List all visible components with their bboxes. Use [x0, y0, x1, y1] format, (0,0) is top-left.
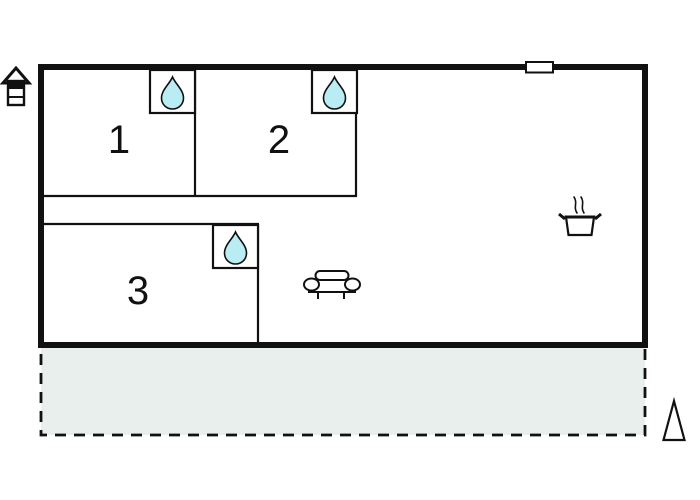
shower-box-1: [150, 70, 195, 113]
room-label-2: 2: [268, 118, 290, 162]
sofa-armrest-left: [304, 279, 319, 291]
sofa-armrest-right: [345, 279, 360, 291]
room-label-1: 1: [108, 118, 130, 162]
shower-box-3: [213, 225, 258, 268]
window-marker: [526, 62, 553, 73]
floor-plan-canvas: 1 2 3: [0, 0, 700, 500]
terrace-area: [41, 345, 645, 435]
pot-body: [566, 217, 594, 235]
north-arrow-icon: [664, 401, 685, 440]
shower-box-2: [312, 70, 357, 113]
sofa-backrest: [316, 271, 349, 280]
house-icon: [3, 68, 29, 105]
room-label-3: 3: [127, 269, 149, 313]
house-icon-band: [8, 81, 24, 89]
